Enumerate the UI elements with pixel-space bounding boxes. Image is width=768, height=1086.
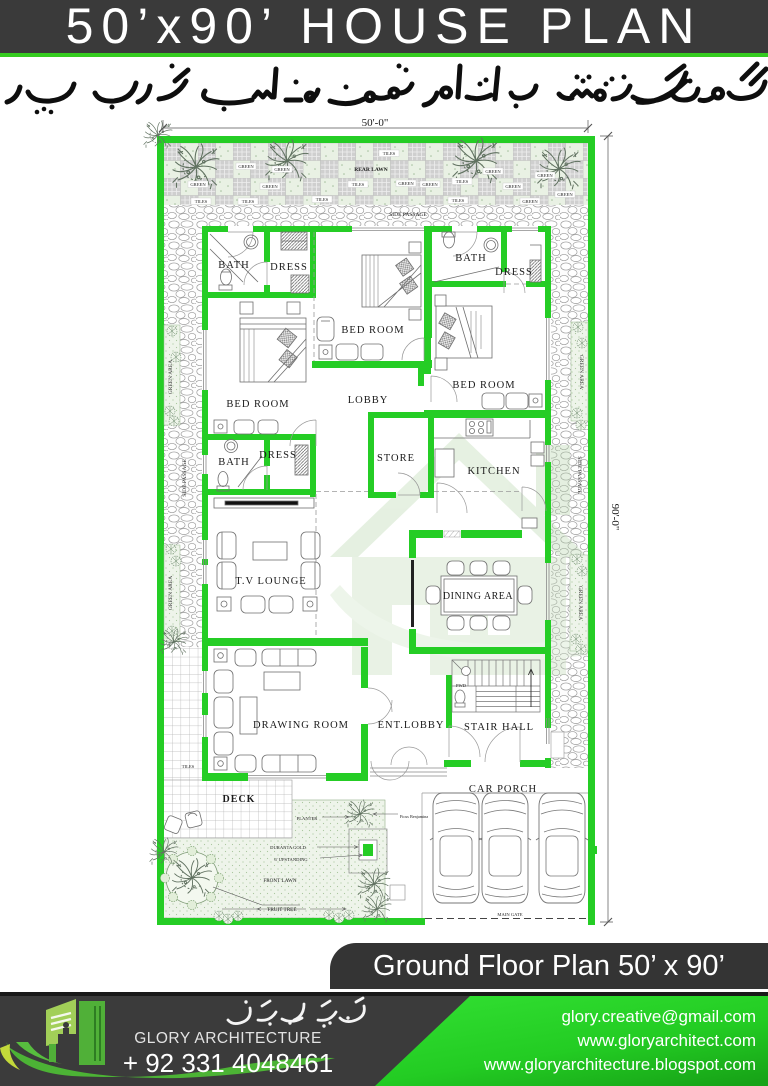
svg-text:GREEN: GREEN [190, 182, 206, 187]
svg-text:glory.creative@gmail.com: glory.creative@gmail.com [561, 1007, 756, 1026]
svg-text:MAIN GATE: MAIN GATE [497, 912, 522, 917]
svg-text:SIDE PASSAGE: SIDE PASSAGE [389, 212, 427, 218]
svg-text:+ 92 331 4048461: + 92 331 4048461 [123, 1048, 333, 1078]
svg-text:DECK: DECK [223, 794, 256, 805]
svg-text:LOBBY: LOBBY [348, 395, 389, 406]
svg-text:TILES: TILES [182, 764, 195, 769]
svg-text:GLORY ARCHITECTURE: GLORY ARCHITECTURE [134, 1030, 322, 1047]
svg-text:GREEN: GREEN [274, 167, 290, 172]
svg-text:PWD: PWD [456, 683, 467, 688]
svg-text:SIDE PASSAGE: SIDE PASSAGE [576, 456, 582, 494]
svg-text:TILES: TILES [352, 182, 365, 187]
svg-text:50'-0": 50'-0" [362, 117, 389, 129]
svg-text:DINING AREA: DINING AREA [443, 591, 513, 602]
svg-text:BATH: BATH [218, 260, 249, 271]
svg-text:T.V LOUNGE: T.V LOUNGE [235, 576, 306, 587]
svg-text:BATH: BATH [455, 253, 486, 264]
svg-text:DRESS: DRESS [270, 262, 308, 273]
svg-text:GREEN: GREEN [522, 199, 538, 204]
svg-text:PLANTER: PLANTER [297, 816, 319, 821]
svg-text:SIDE PASSAGE: SIDE PASSAGE [182, 459, 188, 497]
svg-text:GREEN AREA: GREEN AREA [168, 360, 174, 394]
svg-text:TILES: TILES [456, 179, 469, 184]
svg-text:BED ROOM: BED ROOM [226, 399, 289, 410]
svg-text:GREEN: GREEN [557, 192, 573, 197]
svg-text:GREEN AREA: GREEN AREA [168, 576, 174, 610]
svg-text:DRESS: DRESS [259, 450, 297, 461]
svg-text:GREEN: GREEN [238, 164, 254, 169]
svg-text:KITCHEN: KITCHEN [467, 466, 520, 477]
svg-text:FRONT LAWN: FRONT LAWN [263, 878, 297, 884]
svg-text:Ficus Benjamina: Ficus Benjamina [400, 814, 428, 819]
svg-text:GREEN: GREEN [505, 184, 521, 189]
svg-text:www.gloryarchitecture.blogspot: www.gloryarchitecture.blogspot.com [483, 1055, 756, 1074]
svg-text:GREEN: GREEN [422, 182, 438, 187]
svg-text:GREEN: GREEN [262, 184, 278, 189]
svg-text:TILES: TILES [452, 198, 465, 203]
svg-text:GREEN AREA: GREEN AREA [578, 355, 584, 389]
svg-text:TILES: TILES [242, 199, 255, 204]
svg-text:BED ROOM: BED ROOM [452, 380, 515, 391]
svg-text:GREEN AREA: GREEN AREA [577, 586, 583, 620]
svg-text:DURANTA GOLD: DURANTA GOLD [270, 845, 306, 850]
svg-text:BATH: BATH [218, 457, 249, 468]
svg-text:DRESS: DRESS [495, 267, 533, 278]
svg-text:TILES: TILES [383, 151, 396, 156]
svg-text:GREEN: GREEN [398, 181, 414, 186]
svg-text:GREEN: GREEN [485, 169, 501, 174]
svg-text:BED ROOM: BED ROOM [341, 325, 404, 336]
svg-text:6' UPSTANDING: 6' UPSTANDING [274, 857, 308, 862]
svg-text:CAR PORCH: CAR PORCH [469, 784, 537, 795]
svg-text:www.gloryarchitect.com: www.gloryarchitect.com [576, 1031, 756, 1050]
svg-text:FRUIT TREE: FRUIT TREE [267, 907, 296, 913]
svg-text:90'-0": 90'-0" [609, 504, 621, 531]
svg-text:DRAWING ROOM: DRAWING ROOM [253, 720, 349, 731]
svg-text:GREEN: GREEN [537, 173, 553, 178]
svg-text:STORE: STORE [377, 453, 415, 464]
svg-text:TILES: TILES [195, 199, 208, 204]
svg-text:STAIR HALL: STAIR HALL [464, 722, 534, 733]
svg-text:REAR LAWN: REAR LAWN [354, 167, 387, 173]
svg-text:TILES: TILES [316, 197, 329, 202]
svg-text:ENT.LOBBY: ENT.LOBBY [378, 720, 445, 731]
